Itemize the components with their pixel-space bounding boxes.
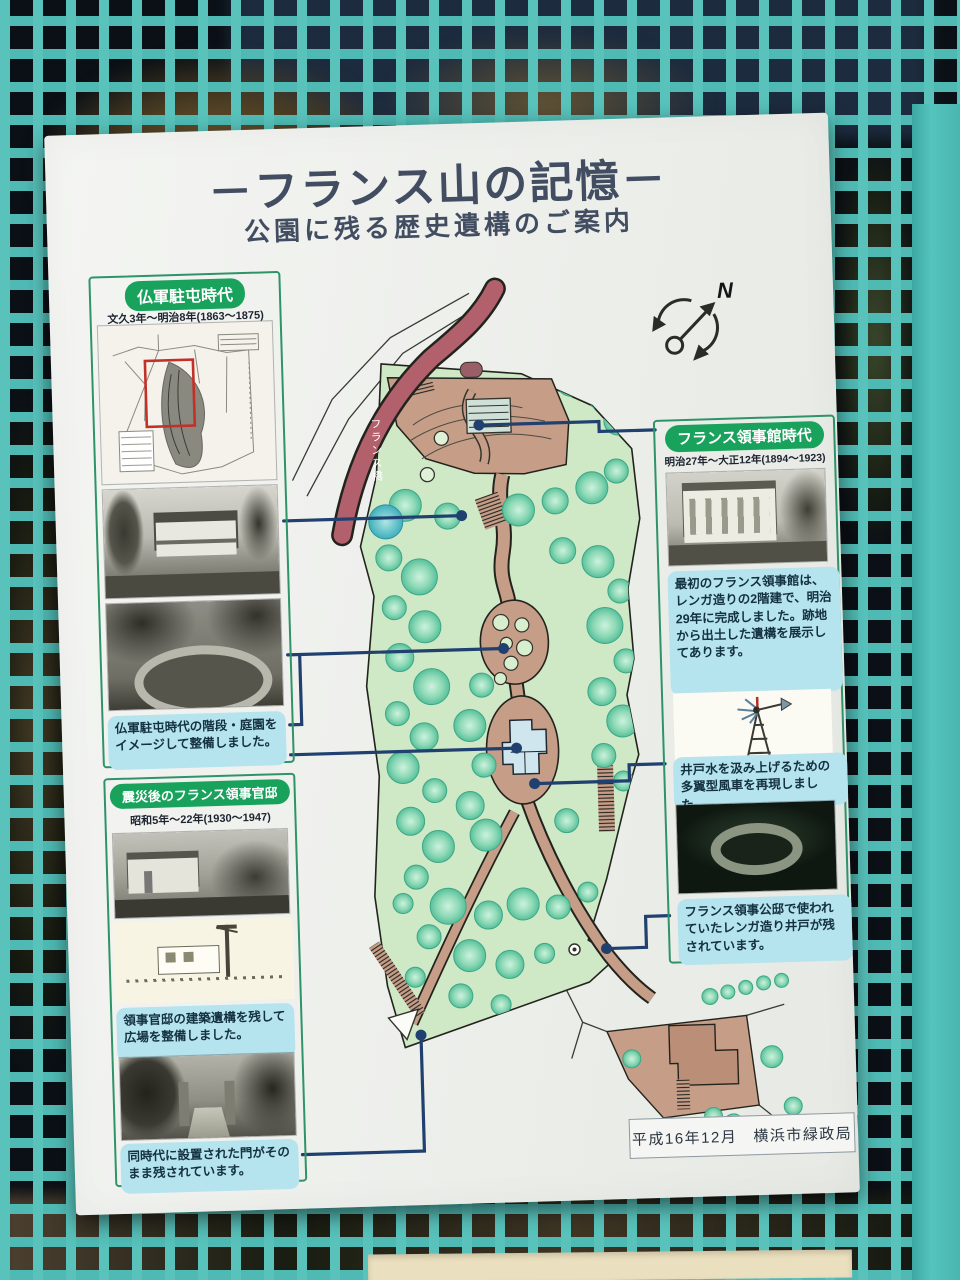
consulate-remains-structure	[466, 398, 511, 433]
sign-board: －フランス山の記憶－ 公園に残る歴史遺構のご案内	[44, 113, 860, 1216]
well-marker	[569, 944, 580, 955]
section-residence-header: 震災後のフランス領事官邸	[110, 779, 290, 809]
well-marker-dot	[572, 947, 576, 951]
connector-lines	[281, 420, 676, 1155]
section-residence-box: 震災後のフランス領事官邸 昭和5年～22年(1930～1947) 領事	[103, 773, 307, 1188]
compass-north-label: N	[717, 277, 735, 302]
lower-sign-partial	[368, 1249, 852, 1280]
caption-residence-gate: 同時代に設置された門がそのまま残されています。	[120, 1139, 299, 1194]
caption-army-garden: 仏軍駐屯時代の階段・庭園をイメージして整備しました。	[107, 711, 287, 770]
park-area	[355, 356, 655, 1048]
park-paths	[396, 470, 652, 1023]
garden-beds	[493, 614, 534, 685]
section-consulate-box: フランス領事館時代 明治27年～大正12年(1894～1923) 最初のフランス…	[653, 415, 851, 964]
round-roof-structure	[460, 362, 482, 378]
fence-post	[912, 104, 960, 1280]
compass-icon	[651, 299, 718, 362]
connector-dots	[397, 416, 614, 1041]
plaza-pond	[434, 431, 448, 445]
credit-box: 平成16年12月 横浜市緑政局	[629, 1112, 856, 1159]
historical-map-image	[98, 321, 277, 484]
photo-army-building	[103, 485, 280, 598]
consulate-foundation	[502, 719, 548, 774]
upper-plaza	[387, 372, 570, 477]
section-consulate-period: 明治27年～大正12年(1894～1923)	[656, 450, 834, 470]
photo-consulate	[666, 469, 827, 566]
photo-brick-well	[676, 801, 837, 894]
building-plaza	[485, 695, 560, 805]
plaza-switchback	[466, 391, 485, 463]
gate-area	[388, 1009, 419, 1040]
section-residence-period: 昭和5年～22年(1930～1947)	[106, 808, 294, 830]
photo-residence-gate	[120, 1053, 296, 1140]
lower-buildings	[669, 1024, 739, 1086]
photo-residence-aerial	[113, 829, 289, 918]
lower-stairs	[676, 1079, 690, 1109]
description-consulate: 最初のフランス領事館は、レンガ造りの2階建で、明治29年に完成しました。跡地から…	[667, 566, 843, 695]
plaza-terraces	[408, 402, 552, 459]
circular-garden	[479, 599, 549, 685]
bridge-label: フランス橋	[369, 418, 383, 483]
bridge-outline	[335, 289, 502, 536]
section-consulate-header: フランス領事館時代	[665, 421, 824, 453]
plaza-switchback-fill	[466, 391, 485, 463]
blue-tree	[368, 504, 403, 539]
section-army-box: 仏軍駐屯時代 文久3年～明治8年(1863～1875)	[88, 271, 295, 768]
park-trees	[370, 363, 649, 1018]
greenhouse-lines	[468, 405, 509, 427]
photo-of-park-sign: －フランス山の記憶－ 公園に残る歴史遺構のご案内	[0, 0, 960, 1280]
photo-army-garden	[106, 599, 283, 710]
credit-org: 横浜市緑政局	[753, 1122, 853, 1146]
caption-well: フランス領事公邸で使われていたレンガ造り井戸が残されています。	[677, 894, 853, 965]
illustration-residence	[113, 917, 295, 1004]
foundation-lines	[511, 751, 548, 774]
lower-plaza	[607, 1015, 760, 1119]
plaza-pond	[420, 467, 434, 481]
credit-date: 平成16年12月	[632, 1125, 738, 1149]
france-bridge	[335, 289, 502, 536]
